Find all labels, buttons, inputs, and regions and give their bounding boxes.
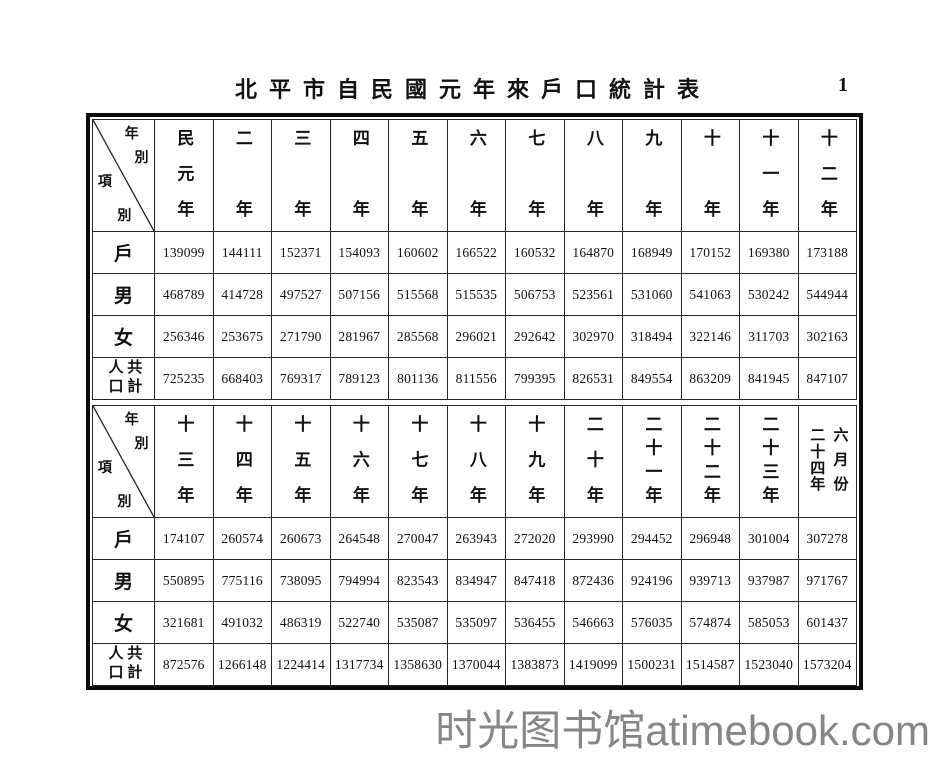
year-column-header: 二年 [213,120,272,232]
value-cell: 574874 [681,602,740,644]
corner-label-item: 項 [98,462,112,476]
value-cell: 292642 [506,316,565,358]
year-column-header: 十七年 [389,406,448,518]
year-column-header: 十年 [681,120,740,232]
value-cell: 307278 [798,518,857,560]
row-label: 人口共計 [105,359,143,393]
year-header-row: 年 別 項 別 十三年十四年十五年十六年十七年十八年十九年二十年二十一年二十二年… [93,406,857,518]
year-column-header: 八年 [564,120,623,232]
year-column-label: 十年 [700,129,721,217]
value-cell: 811556 [447,358,506,400]
value-cell: 164870 [564,232,623,274]
year-column-header: 十五年 [272,406,331,518]
value-cell: 264548 [330,518,389,560]
value-cell: 971767 [798,560,857,602]
value-cell: 794994 [330,560,389,602]
value-cell: 541063 [681,274,740,316]
value-cell: 1266148 [213,644,272,686]
year-column-header: 六年 [447,120,506,232]
value-cell: 301004 [740,518,799,560]
value-cell: 272020 [506,518,565,560]
value-cell: 253675 [213,316,272,358]
year-column-label: 八年 [583,129,604,217]
corner-label-year: 年 [125,414,139,428]
value-cell: 1514587 [681,644,740,686]
value-cell: 515535 [447,274,506,316]
value-cell: 160532 [506,232,565,274]
value-cell: 937987 [740,560,799,602]
year-column-header: 民元年 [155,120,214,232]
page-title: 北平市自民國元年來戶口統計表 [0,72,934,104]
year-column-header: 十八年 [447,406,506,518]
value-cell: 725235 [155,358,214,400]
corner-label-item: 項 [98,176,112,190]
table-row: 男550895775116738095794994823543834947847… [93,560,857,602]
year-column-header: 四年 [330,120,389,232]
value-cell: 260574 [213,518,272,560]
value-cell: 1419099 [564,644,623,686]
table-row: 戶174107260574260673264548270047263943272… [93,518,857,560]
row-label: 男 [93,281,154,308]
year-column-label: 十二年 [817,129,838,217]
value-cell: 144111 [213,232,272,274]
value-cell: 826531 [564,358,623,400]
value-cell: 847107 [798,358,857,400]
year-column-label: 七年 [524,129,545,217]
value-cell: 544944 [798,274,857,316]
value-cell: 260673 [272,518,331,560]
row-header: 人口共計 [93,644,155,686]
value-cell: 1224414 [272,644,331,686]
value-cell: 872576 [155,644,214,686]
year-column-header: 七年 [506,120,565,232]
corner-cell-year-item: 年 別 項 別 [93,120,155,232]
year-column-header: 十四年 [213,406,272,518]
value-cell: 318494 [623,316,682,358]
row-header: 人口共計 [93,358,155,400]
year-column-label: 十四年 [232,415,253,503]
row-header: 戶 [93,518,155,560]
value-cell: 536455 [506,602,565,644]
corner-cell-year-item: 年 別 項 別 [93,406,155,518]
value-cell: 507156 [330,274,389,316]
value-cell: 281967 [330,316,389,358]
value-cell: 322146 [681,316,740,358]
value-cell: 522740 [330,602,389,644]
value-cell: 256346 [155,316,214,358]
value-cell: 506753 [506,274,565,316]
year-column-label: 三年 [290,129,311,217]
value-cell: 296948 [681,518,740,560]
row-header: 戶 [93,232,155,274]
table-row: 男468789414728497527507156515568515535506… [93,274,857,316]
value-cell: 1383873 [506,644,565,686]
value-cell: 468789 [155,274,214,316]
value-cell: 311703 [740,316,799,358]
value-cell: 535087 [389,602,448,644]
year-column-header: 三年 [272,120,331,232]
value-cell: 1370044 [447,644,506,686]
year-column-label: 十六年 [349,415,370,503]
table-section-years-1-12: 年 別 項 別 民元年二年三年四年五年六年七年八年九年十年十一年十二年 戶139… [92,119,857,400]
value-cell: 847418 [506,560,565,602]
year-column-header: 十六年 [330,406,389,518]
value-cell: 801136 [389,358,448,400]
value-cell: 841945 [740,358,799,400]
table-row: 戶139099144111152371154093160602166522160… [93,232,857,274]
year-column-label: 民元年 [173,129,194,217]
row-header: 女 [93,316,155,358]
table-row: 人口共計725235668403769317789123801136811556… [93,358,857,400]
year-column-header: 五年 [389,120,448,232]
value-cell: 1523040 [740,644,799,686]
value-cell: 271790 [272,316,331,358]
row-label: 男 [93,567,154,594]
corner-label-bie-top: 別 [135,152,149,166]
value-cell: 321681 [155,602,214,644]
value-cell: 515568 [389,274,448,316]
value-cell: 939713 [681,560,740,602]
value-cell: 174107 [155,518,214,560]
year-column-label: 四年 [349,129,370,217]
corner-label-year: 年 [125,128,139,142]
year-column-label: 二十一年 [641,415,662,503]
year-column-label: 十三年 [173,415,194,503]
value-cell: 872436 [564,560,623,602]
year-column-label: 二十二年 [700,415,721,503]
year-column-header: 二十三年 [740,406,799,518]
value-cell: 601437 [798,602,857,644]
value-cell: 173188 [798,232,857,274]
value-cell: 530242 [740,274,799,316]
year-column-label: 十一年 [758,129,779,217]
year-column-label: 五年 [407,129,428,217]
year-column-label: 十七年 [407,415,428,503]
value-cell: 769317 [272,358,331,400]
year-column-header: 二十二年 [681,406,740,518]
value-cell: 160602 [389,232,448,274]
value-cell: 302163 [798,316,857,358]
value-cell: 302970 [564,316,623,358]
year-column-label: 十八年 [466,415,487,503]
value-cell: 285568 [389,316,448,358]
year-column-label: 十五年 [290,415,311,503]
table-row: 女321681491032486319522740535087535097536… [93,602,857,644]
value-cell: 139099 [155,232,214,274]
value-cell: 523561 [564,274,623,316]
value-cell: 166522 [447,232,506,274]
value-cell: 531060 [623,274,682,316]
year-column-header: 二十四年六月份 [798,406,857,518]
year-column-header: 十一年 [740,120,799,232]
row-header: 女 [93,602,155,644]
corner-label-bie-bottom: 別 [117,496,131,510]
value-cell: 1573204 [798,644,857,686]
table-row: 人口共計872576126614812244141317734135863013… [93,644,857,686]
year-column-header: 二十年 [564,406,623,518]
value-cell: 1358630 [389,644,448,686]
value-cell: 775116 [213,560,272,602]
row-label: 人口共計 [105,645,143,679]
value-cell: 738095 [272,560,331,602]
year-column-label: 六年 [466,129,487,217]
row-label: 戶 [93,239,154,266]
year-column-label: 九年 [641,129,662,217]
year-column-label: 二十年 [583,415,604,503]
corner-label-bie-bottom: 別 [117,210,131,224]
value-cell: 154093 [330,232,389,274]
value-cell: 491032 [213,602,272,644]
year-column-label: 二十四年六月份 [804,427,851,491]
value-cell: 924196 [623,560,682,602]
year-column-label: 二十三年 [758,415,779,503]
row-header: 男 [93,560,155,602]
scanned-document-page: 北平市自民國元年來戶口統計表 1 年 別 項 別 民元年二年三年四年五年六年七年… [0,0,934,768]
year-column-header: 九年 [623,120,682,232]
year-column-header: 二十一年 [623,406,682,518]
value-cell: 849554 [623,358,682,400]
row-header: 男 [93,274,155,316]
year-header-row: 年 別 項 別 民元年二年三年四年五年六年七年八年九年十年十一年十二年 [93,120,857,232]
value-cell: 1500231 [623,644,682,686]
watermark: 时光图书馆atimebook.com [435,697,930,758]
value-cell: 834947 [447,560,506,602]
value-cell: 823543 [389,560,448,602]
value-cell: 1317734 [330,644,389,686]
value-cell: 169380 [740,232,799,274]
value-cell: 296021 [447,316,506,358]
value-cell: 576035 [623,602,682,644]
row-label: 女 [93,609,154,636]
value-cell: 668403 [213,358,272,400]
table-row: 女256346253675271790281967285568296021292… [93,316,857,358]
value-cell: 270047 [389,518,448,560]
value-cell: 293990 [564,518,623,560]
statistics-table-frame: 年 別 項 別 民元年二年三年四年五年六年七年八年九年十年十一年十二年 戶139… [86,113,863,690]
value-cell: 585053 [740,602,799,644]
value-cell: 414728 [213,274,272,316]
year-column-label: 十九年 [524,415,545,503]
year-column-header: 十九年 [506,406,565,518]
value-cell: 546663 [564,602,623,644]
value-cell: 152371 [272,232,331,274]
row-label: 女 [93,323,154,350]
value-cell: 294452 [623,518,682,560]
value-cell: 550895 [155,560,214,602]
page-number: 1 [838,74,848,97]
value-cell: 170152 [681,232,740,274]
table-section-years-13-24: 年 別 項 別 十三年十四年十五年十六年十七年十八年十九年二十年二十一年二十二年… [92,405,857,686]
row-label: 戶 [93,525,154,552]
value-cell: 486319 [272,602,331,644]
value-cell: 497527 [272,274,331,316]
corner-label-bie-top: 別 [135,438,149,452]
value-cell: 863209 [681,358,740,400]
value-cell: 535097 [447,602,506,644]
value-cell: 799395 [506,358,565,400]
year-column-header: 十三年 [155,406,214,518]
year-column-header: 十二年 [798,120,857,232]
value-cell: 168949 [623,232,682,274]
value-cell: 263943 [447,518,506,560]
value-cell: 789123 [330,358,389,400]
year-column-label: 二年 [232,129,253,217]
